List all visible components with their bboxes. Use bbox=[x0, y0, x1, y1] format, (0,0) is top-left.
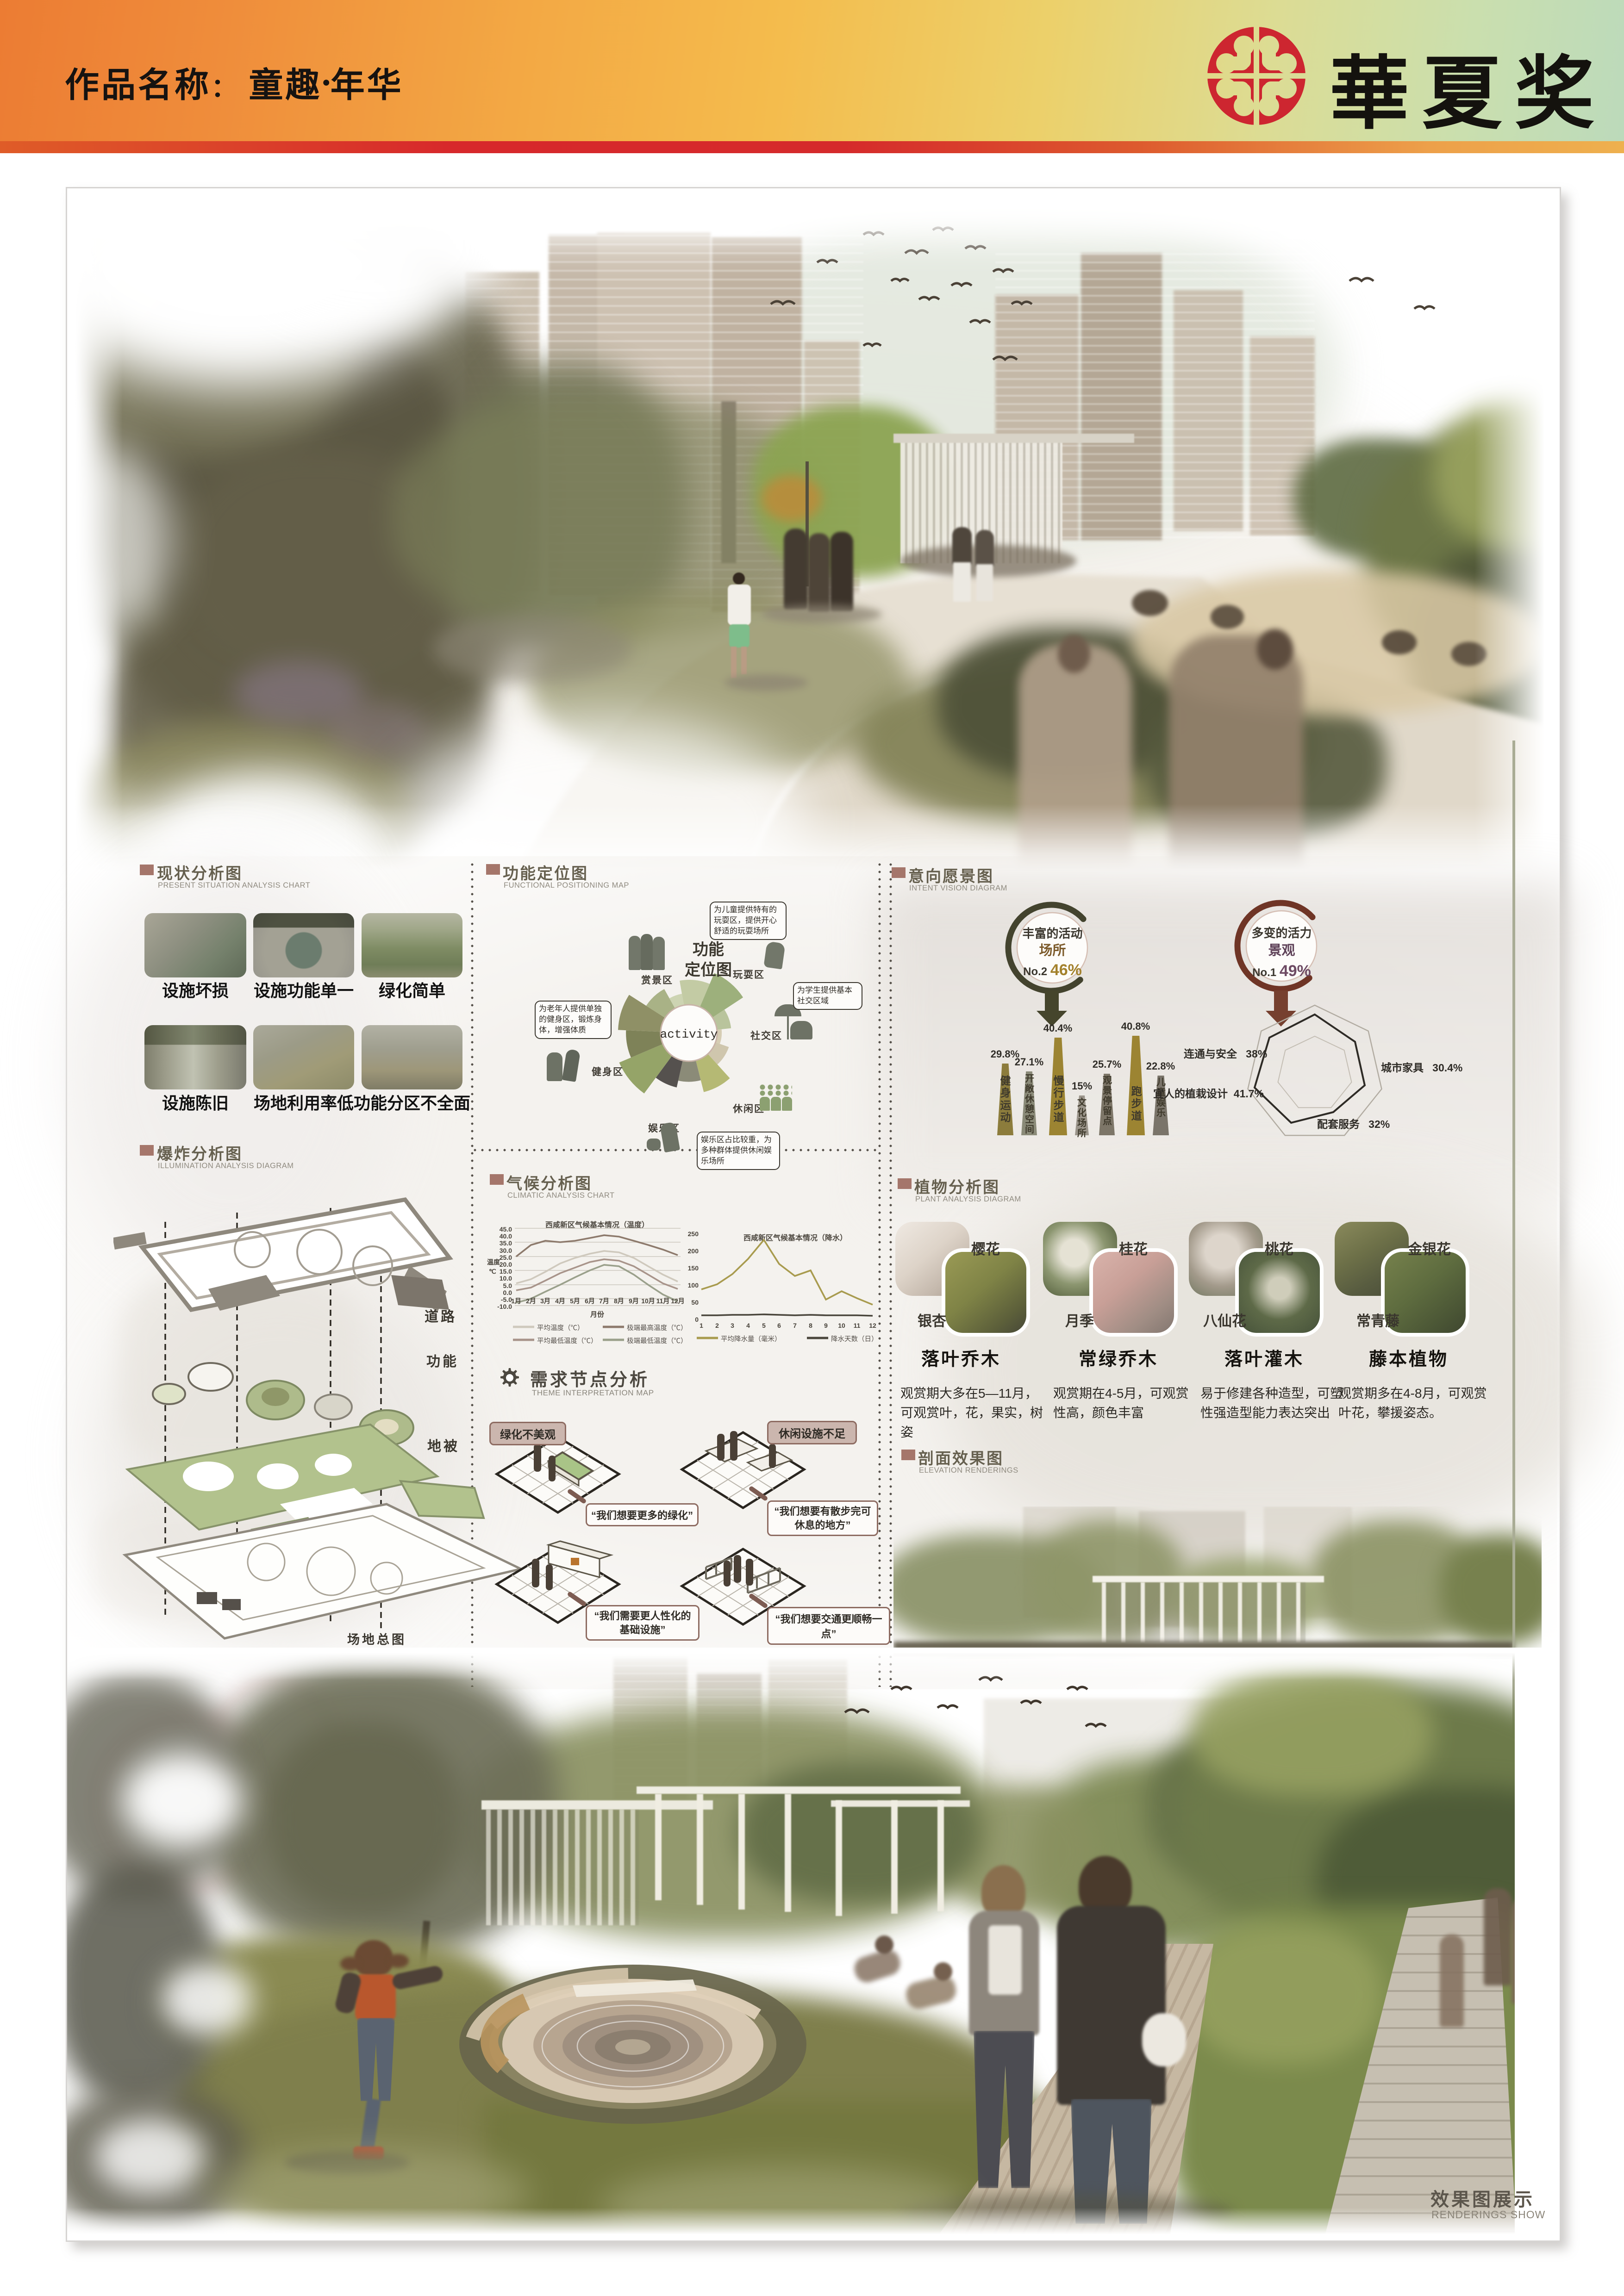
svg-text:3月: 3月 bbox=[540, 1297, 550, 1305]
svg-text:0.0: 0.0 bbox=[503, 1289, 512, 1296]
svg-text:9月: 9月 bbox=[629, 1297, 639, 1305]
svg-text:2: 2 bbox=[715, 1322, 719, 1329]
svg-text:平均温度（℃）: 平均温度（℃） bbox=[537, 1324, 584, 1332]
svg-text:10月: 10月 bbox=[641, 1297, 655, 1305]
svg-text:6: 6 bbox=[777, 1322, 781, 1329]
svg-text:7月: 7月 bbox=[599, 1297, 609, 1305]
svg-text:40.0: 40.0 bbox=[500, 1232, 512, 1240]
svg-text:-5.0: -5.0 bbox=[501, 1296, 512, 1303]
svg-text:3: 3 bbox=[731, 1322, 734, 1329]
svg-text:0: 0 bbox=[695, 1316, 699, 1323]
svg-text:场地总图: 场地总图 bbox=[347, 1633, 406, 1647]
svg-text:11: 11 bbox=[854, 1322, 861, 1329]
svg-text:30.0: 30.0 bbox=[500, 1247, 512, 1254]
svg-text:℃: ℃ bbox=[489, 1268, 496, 1275]
svg-text:10.0: 10.0 bbox=[500, 1275, 512, 1282]
svg-text:4: 4 bbox=[746, 1322, 750, 1329]
svg-text:-10.0: -10.0 bbox=[497, 1303, 512, 1310]
svg-text:25.0: 25.0 bbox=[500, 1254, 512, 1261]
svg-text:降水天数（日）: 降水天数（日） bbox=[831, 1335, 878, 1343]
svg-text:道路: 道路 bbox=[425, 1309, 457, 1325]
svg-text:100: 100 bbox=[688, 1282, 699, 1289]
svg-text:45.0: 45.0 bbox=[500, 1226, 512, 1233]
svg-text:平均最低温度（℃）: 平均最低温度（℃） bbox=[537, 1337, 598, 1345]
svg-text:月份: 月份 bbox=[590, 1310, 605, 1319]
svg-text:4月: 4月 bbox=[555, 1297, 565, 1305]
svg-text:5: 5 bbox=[762, 1322, 766, 1329]
svg-text:200: 200 bbox=[688, 1247, 699, 1255]
svg-text:250: 250 bbox=[688, 1230, 699, 1238]
svg-text:功能: 功能 bbox=[426, 1354, 459, 1369]
svg-text:西咸新区气候基本情况（温度）: 西咸新区气候基本情况（温度） bbox=[545, 1220, 649, 1229]
svg-text:20.0: 20.0 bbox=[500, 1261, 512, 1268]
svg-text:极端最低温度（℃）: 极端最低温度（℃） bbox=[627, 1337, 687, 1345]
svg-text:35.0: 35.0 bbox=[500, 1239, 512, 1247]
svg-text:9: 9 bbox=[824, 1322, 828, 1329]
svg-text:地被: 地被 bbox=[427, 1439, 460, 1454]
svg-text:10: 10 bbox=[838, 1322, 845, 1329]
svg-text:11月: 11月 bbox=[656, 1297, 670, 1305]
svg-text:12: 12 bbox=[869, 1322, 876, 1329]
svg-text:5.0: 5.0 bbox=[503, 1282, 512, 1289]
svg-text:6月: 6月 bbox=[585, 1297, 595, 1305]
svg-text:温度: 温度 bbox=[487, 1258, 500, 1266]
svg-text:150: 150 bbox=[688, 1264, 699, 1272]
svg-text:8: 8 bbox=[809, 1322, 812, 1329]
svg-text:activity: activity bbox=[660, 1027, 718, 1041]
svg-text:平均降水量（毫米）: 平均降水量（毫米） bbox=[721, 1335, 781, 1343]
svg-text:50: 50 bbox=[691, 1299, 699, 1306]
svg-text:15.0: 15.0 bbox=[500, 1268, 512, 1275]
svg-text:西咸新区气候基本情况（降水）: 西咸新区气候基本情况（降水） bbox=[743, 1233, 847, 1242]
svg-text:2月: 2月 bbox=[526, 1297, 536, 1305]
svg-text:1: 1 bbox=[700, 1322, 703, 1329]
svg-text:8月: 8月 bbox=[614, 1297, 624, 1305]
svg-text:7: 7 bbox=[793, 1322, 797, 1329]
svg-text:极端最高温度（℃）: 极端最高温度（℃） bbox=[627, 1324, 687, 1332]
svg-text:1月: 1月 bbox=[511, 1297, 521, 1305]
svg-text:5月: 5月 bbox=[570, 1297, 580, 1305]
